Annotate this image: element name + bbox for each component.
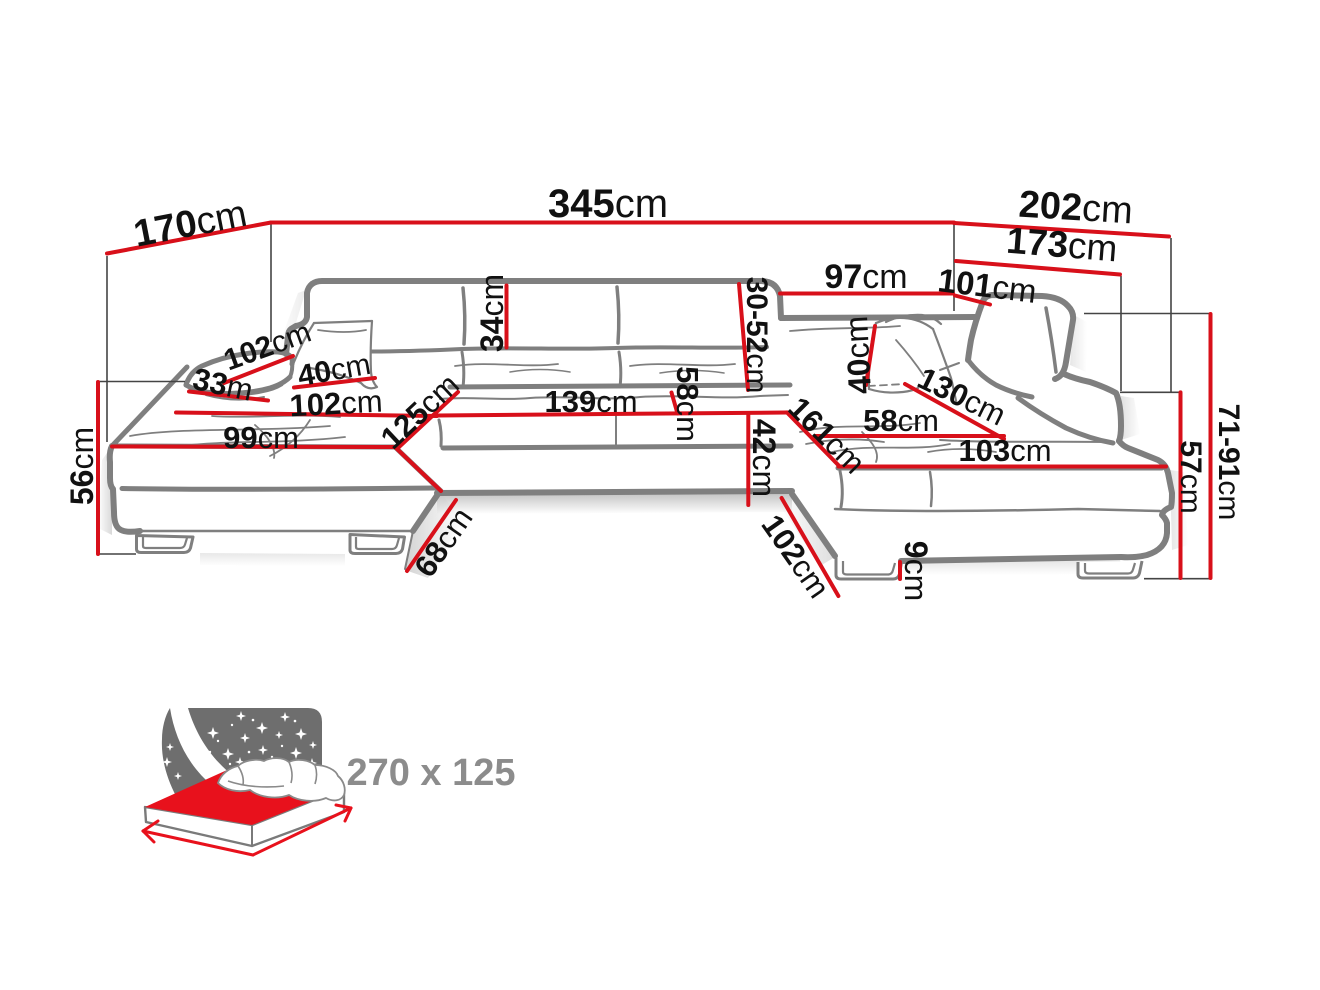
svg-text:139cm: 139cm (544, 384, 637, 419)
svg-text:345cm: 345cm (548, 182, 668, 226)
svg-text:58cm: 58cm (863, 403, 939, 438)
svg-text:40cm: 40cm (838, 315, 878, 395)
svg-text:57cm: 57cm (1174, 440, 1207, 513)
svg-text:270 x 125: 270 x 125 (346, 752, 515, 794)
svg-text:42cm: 42cm (746, 419, 782, 497)
svg-text:9cm: 9cm (898, 541, 934, 601)
svg-text:34cm: 34cm (474, 274, 510, 352)
svg-text:56cm: 56cm (64, 427, 100, 505)
svg-text:99cm: 99cm (223, 420, 299, 455)
svg-text:103cm: 103cm (958, 433, 1051, 468)
svg-text:102cm: 102cm (289, 384, 384, 424)
svg-text:71-91cm: 71-91cm (1212, 404, 1245, 521)
svg-text:30-52cm: 30-52cm (740, 277, 773, 394)
svg-text:58cm: 58cm (670, 366, 705, 442)
svg-text:97cm: 97cm (824, 258, 907, 296)
svg-text:173cm: 173cm (1005, 220, 1119, 270)
